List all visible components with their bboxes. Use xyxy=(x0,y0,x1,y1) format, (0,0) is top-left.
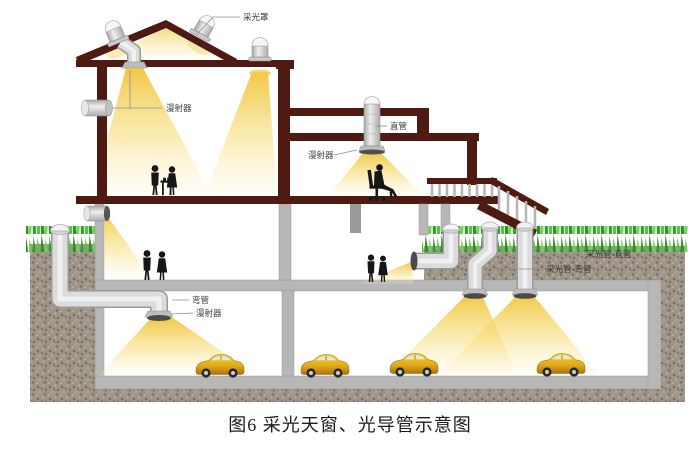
basement-right-wall xyxy=(648,280,661,389)
diffuser-garage-3-icon xyxy=(514,293,537,299)
porch-hanging-wall xyxy=(350,204,361,233)
label-diffuser-room2: 漫射器 xyxy=(308,150,334,160)
label-pipe-bent-full: 采光管-弯管 xyxy=(546,264,591,274)
ground-floor-beam xyxy=(76,196,500,204)
label-collector-dome: 采光罩 xyxy=(243,12,269,22)
garage-floor-slab xyxy=(95,376,661,389)
label-straight-pipe: 直管 xyxy=(390,121,407,131)
diffuser-room2-icon xyxy=(359,150,385,155)
porch-roof-beam xyxy=(290,133,479,141)
wall-pipe-floor1 xyxy=(82,100,113,116)
soil-bottom xyxy=(30,389,685,402)
ceiling-diffuser-room1 xyxy=(122,62,147,68)
porch-column-1 xyxy=(419,204,428,235)
diagram-canvas: 采光罩 漫射器 直管 漫射器 采光管-直管 采光管-弯管 弯管 漫射器 图6 采… xyxy=(0,0,700,453)
glow-room1b xyxy=(249,70,271,77)
label-bent-pipe: 弯管 xyxy=(192,295,209,305)
label-diffuser-basement: 漫射器 xyxy=(196,308,222,318)
soil-right-side xyxy=(661,246,685,402)
room2-roof-beam xyxy=(290,108,429,116)
label-pipe-straight-full: 采光管-直管 xyxy=(586,249,631,259)
garage-column xyxy=(282,291,294,376)
figure-6-daylighting-diagram: 采光罩 漫射器 直管 漫射器 采光管-直管 采光管-弯管 弯管 漫射器 图6 采… xyxy=(0,0,700,453)
diffuser-garage-1-icon xyxy=(147,315,171,321)
diffuser-garage-2-icon xyxy=(464,293,487,299)
middle-wall xyxy=(278,63,290,197)
grass-right xyxy=(422,226,688,252)
diffuser-basement-right-icon xyxy=(411,252,418,271)
left-wall xyxy=(97,63,107,197)
label-diffuser-room1: 漫射器 xyxy=(166,103,192,113)
diffuser-basement-wall-icon xyxy=(104,206,110,221)
porch-rail xyxy=(427,178,497,184)
figure-caption: 图6 采光天窗、光导管示意图 xyxy=(228,415,472,435)
wall-pipe-basement xyxy=(84,206,110,221)
basement-column xyxy=(279,204,291,280)
